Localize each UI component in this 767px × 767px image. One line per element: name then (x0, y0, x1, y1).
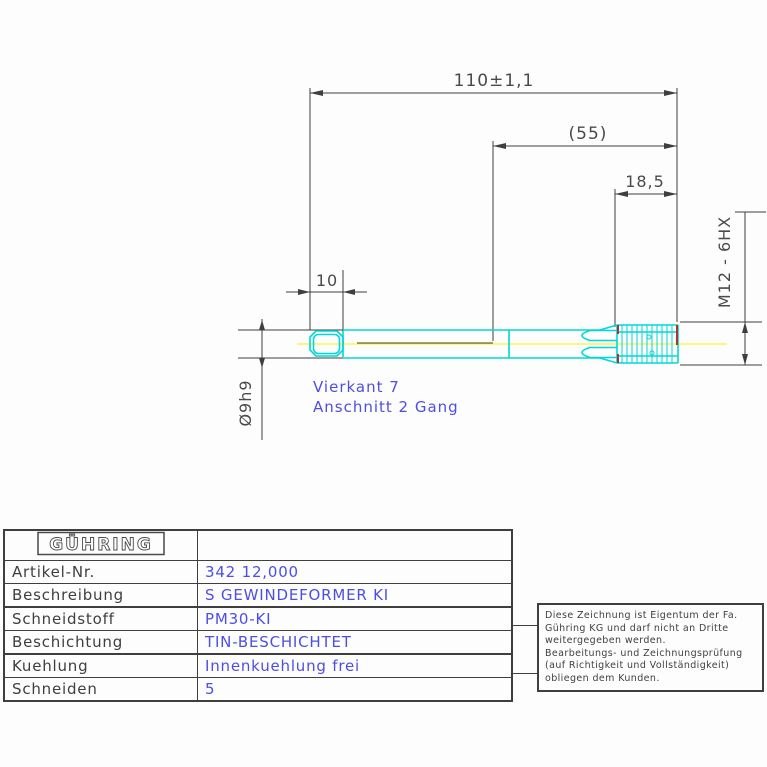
dim-half-length: (55) (569, 124, 608, 144)
dim-square-length: 10 (316, 271, 338, 290)
row-value: 342 12,000 (198, 561, 513, 584)
annotation-square: Vierkant 7 (313, 378, 400, 396)
row-value: TIN-BESCHICHTET (198, 631, 513, 655)
table-row: Artikel-Nr. 342 12,000 (4, 561, 512, 584)
disclaimer-line: Gühring KG und darf nicht an Dritte (545, 623, 757, 636)
dim-thread-length: 18,5 (625, 172, 665, 191)
tool-drawing: 110±1,1 (55) 18,5 10 Ø9h9 M12 - 6HX Vier… (0, 0, 767, 520)
spec-table: GÜHRING Artikel-Nr. 342 12,000 Beschreib… (3, 529, 513, 702)
row-label: Beschreibung (4, 584, 198, 608)
table-row: Kuehlung Innenkuehlung frei (4, 654, 512, 678)
logo-row-empty-cell (198, 530, 513, 561)
disclaimer-line: (auf Richtigkeit und Vollständigkeit) (545, 660, 757, 673)
row-label: Schneidstoff (4, 607, 198, 631)
disclaimer-line: weitergegeben werden. (545, 635, 757, 648)
row-label: Beschichtung (4, 631, 198, 655)
row-value: Innenkuehlung frei (198, 654, 513, 678)
dim-overall-length: 110±1,1 (454, 71, 535, 91)
annotation-lead: Anschnitt 2 Gang (313, 398, 459, 416)
logo-cell: GÜHRING (4, 530, 198, 561)
row-label: Schneiden (4, 678, 198, 702)
flute-bottom (582, 348, 617, 358)
disclaimer-line: Diese Zeichnung ist Eigentum der Fa. (545, 610, 757, 623)
connector-line (513, 625, 537, 626)
dim-thread-spec: M12 - 6HX (715, 216, 734, 308)
dim-shank-diameter: Ø9h9 (236, 379, 255, 426)
connector-line (513, 673, 537, 674)
row-value: S GEWINDEFORMER KI (198, 584, 513, 608)
cad-drawing-page: 110±1,1 (55) 18,5 10 Ø9h9 M12 - 6HX Vier… (0, 0, 767, 767)
table-row: Beschichtung TIN-BESCHICHTET (4, 631, 512, 655)
disclaimer-line: obliegen dem Kunden. (545, 673, 757, 686)
row-value: PM30-KI (198, 607, 513, 631)
row-value: 5 (198, 678, 513, 702)
disclaimer-line: Bearbeitungs- und Zeichnungsprüfung (545, 648, 757, 661)
row-label: Artikel-Nr. (4, 561, 198, 584)
table-row: Schneiden 5 (4, 678, 512, 702)
row-label: Kuehlung (4, 654, 198, 678)
dimension-arrows (259, 90, 748, 368)
disclaimer-box: Diese Zeichnung ist Eigentum der Fa. Güh… (537, 603, 764, 692)
table-row: Schneidstoff PM30-KI (4, 607, 512, 631)
table-row: GÜHRING (4, 530, 512, 561)
guehring-logo: GÜHRING (5, 531, 195, 556)
table-row: Beschreibung S GEWINDEFORMER KI (4, 584, 512, 608)
logo-text: GÜHRING (49, 533, 153, 555)
flute-top (582, 331, 617, 341)
